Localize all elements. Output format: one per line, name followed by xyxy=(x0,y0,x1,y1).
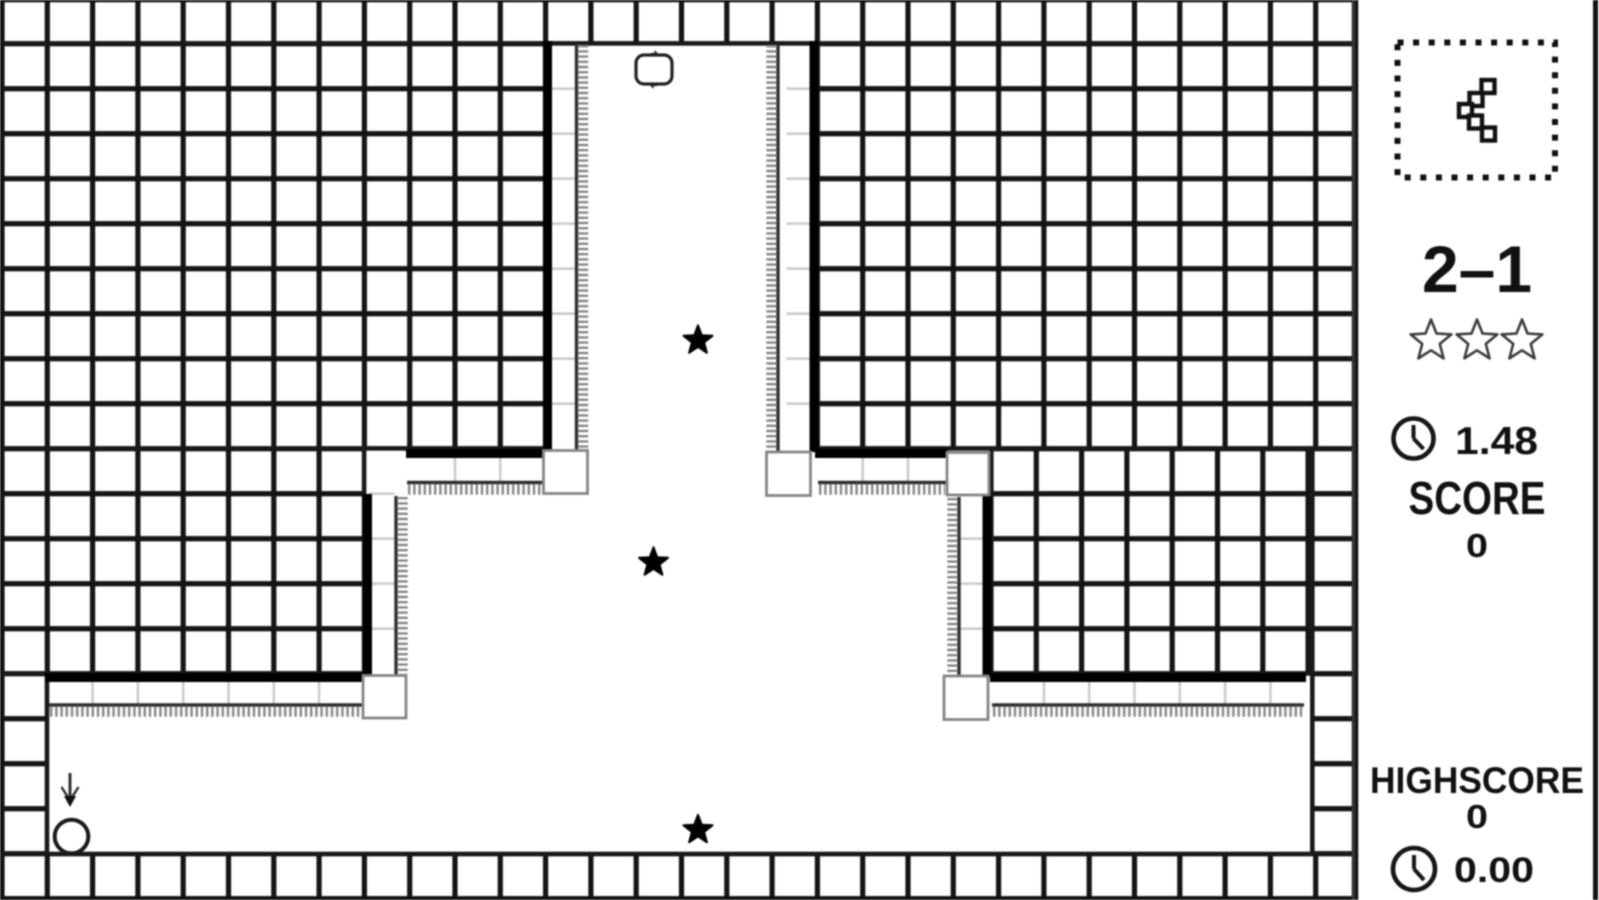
svg-text:HIGHSCORE: HIGHSCORE xyxy=(1370,760,1584,801)
svg-text:2–1: 2–1 xyxy=(1422,232,1532,306)
svg-text:SCORE: SCORE xyxy=(1409,472,1546,524)
svg-text:0: 0 xyxy=(1466,798,1488,835)
svg-text:0: 0 xyxy=(1466,527,1488,564)
svg-text:1.48: 1.48 xyxy=(1455,420,1538,463)
svg-text:0.00: 0.00 xyxy=(1454,851,1534,890)
